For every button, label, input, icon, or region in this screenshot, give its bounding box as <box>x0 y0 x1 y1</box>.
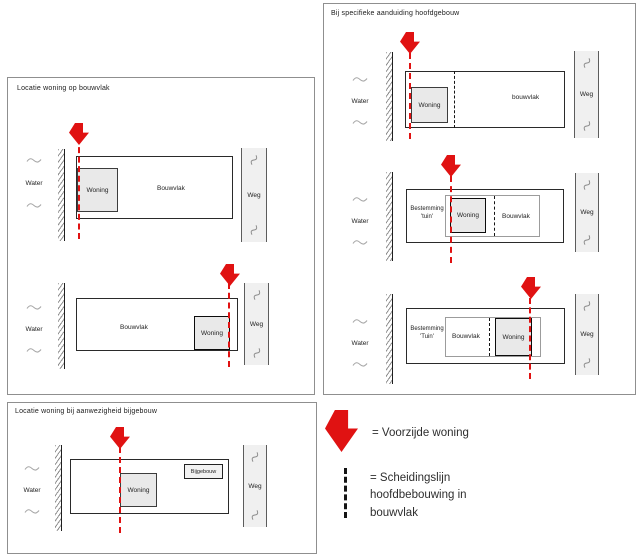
woning-label: Woning <box>503 334 525 341</box>
wave-icon <box>26 347 42 354</box>
front-arrow-icon <box>400 32 420 54</box>
weg-strip: Weg <box>241 148 267 242</box>
road-mark-icon <box>581 233 593 246</box>
red-dashed-line <box>529 298 531 379</box>
road-mark-icon <box>581 178 593 191</box>
weg-strip: Weg <box>575 173 599 252</box>
road-mark-icon <box>248 223 260 236</box>
water-zone: Water <box>341 196 379 246</box>
road-mark-icon <box>251 288 263 301</box>
front-arrow-icon <box>441 155 461 177</box>
road-mark-icon <box>581 119 593 132</box>
road-mark-icon <box>581 56 593 69</box>
wave-icon <box>352 196 368 203</box>
weg-strip: Weg <box>243 445 267 527</box>
red-dashed-line <box>409 53 411 139</box>
road-mark-icon <box>581 299 593 312</box>
water-zone: Water <box>14 465 50 515</box>
front-arrow-icon <box>110 427 130 449</box>
weg-strip: Weg <box>575 294 599 375</box>
legend-separator-label: = Scheidingslijn hoofdbebouwing in bouwv… <box>370 470 482 522</box>
shore-hatch-line <box>55 445 62 531</box>
panel-specifieke-aanduiding-hoofdgebouw: Bij specifieke aanduiding hoofdgebouw Wa… <box>323 3 636 395</box>
water-zone: Water <box>16 157 52 209</box>
red-dashed-line <box>228 283 230 367</box>
bouwvlak-label: Bouwvlak <box>502 213 530 220</box>
wave-icon <box>26 304 42 311</box>
bijgebouw-label: Bijgebouw <box>191 469 216 475</box>
woning-box: Woning <box>450 198 486 233</box>
water-label: Water <box>351 98 368 105</box>
wave-icon <box>26 157 42 164</box>
woning-box: Woning <box>411 87 448 123</box>
bestemming-tuin-label: Bestemming 'Tuin' <box>407 325 447 341</box>
water-label: Water <box>351 218 368 225</box>
water-zone: Water <box>16 304 52 354</box>
panel-locatie-woning-bij-bijgebouw: Locatie woning bij aanwezigheid bijgebou… <box>7 402 317 554</box>
weg-label: Weg <box>247 192 260 199</box>
weg-label: Weg <box>250 321 263 328</box>
wave-icon <box>352 239 368 246</box>
water-label: Water <box>25 180 42 187</box>
water-zone: Water <box>341 76 379 126</box>
water-label: Water <box>23 487 40 494</box>
bouwvlak-label: bouwvlak <box>512 94 539 101</box>
shore-hatch-line <box>58 149 65 241</box>
separation-dashed-line <box>494 196 495 236</box>
road-mark-icon <box>249 508 261 521</box>
wave-icon <box>352 361 368 368</box>
bijgebouw-box: Bijgebouw <box>184 464 223 479</box>
weg-label: Weg <box>248 483 261 490</box>
separation-dashed-line <box>454 71 455 128</box>
woning-label: Woning <box>419 102 441 109</box>
shore-hatch-line <box>386 52 393 141</box>
road-mark-icon <box>248 153 260 166</box>
bouwvlak-label: Bouwvlak <box>157 185 185 192</box>
panel-locatie-woning-op-bouwvlak: Locatie woning op bouwvlak Water Bouwvla… <box>7 77 315 395</box>
wave-icon <box>24 508 40 515</box>
bestemming-tuin-label: Bestemming 'tuin' <box>407 205 447 221</box>
wave-icon <box>352 76 368 83</box>
water-label: Water <box>25 326 42 333</box>
bouwvlak-label: Bouwvlak <box>452 333 480 340</box>
road-mark-icon <box>251 346 263 359</box>
wave-icon <box>26 202 42 209</box>
road-mark-icon <box>581 356 593 369</box>
shore-hatch-line <box>386 172 393 261</box>
shore-hatch-line <box>58 283 65 369</box>
woning-label: Woning <box>201 330 223 337</box>
wave-icon <box>352 119 368 126</box>
road-mark-icon <box>249 450 261 463</box>
weg-strip: Weg <box>244 283 269 365</box>
bouwvlak-label: Bouwvlak <box>120 324 148 331</box>
separation-dashed-line <box>489 318 490 356</box>
panel-title: Locatie woning op bouwvlak <box>17 85 110 92</box>
legend-separation-line-icon <box>344 468 347 518</box>
woning-box: Woning <box>120 473 157 507</box>
front-arrow-icon <box>521 277 541 299</box>
weg-label: Weg <box>580 331 593 338</box>
red-dashed-line <box>119 447 121 533</box>
panel-title: Locatie woning bij aanwezigheid bijgebou… <box>15 408 157 415</box>
weg-strip: Weg <box>574 51 599 138</box>
weg-label: Weg <box>580 91 593 98</box>
water-label: Water <box>351 340 368 347</box>
wave-icon <box>24 465 40 472</box>
red-dashed-line <box>450 176 452 263</box>
shore-hatch-line <box>386 294 393 384</box>
woning-box: Woning <box>495 318 532 356</box>
legend-arrow-label: = Voorzijde woning <box>372 427 469 439</box>
woning-box: Woning <box>77 168 118 212</box>
water-zone: Water <box>341 318 379 368</box>
woning-box: Woning <box>194 316 230 350</box>
woning-label: Woning <box>457 212 479 219</box>
weg-label: Weg <box>580 209 593 216</box>
wave-icon <box>352 318 368 325</box>
woning-label: Woning <box>87 187 109 194</box>
panel-title: Bij specifieke aanduiding hoofdgebouw <box>331 10 459 17</box>
front-arrow-icon <box>69 123 89 145</box>
front-arrow-icon <box>220 264 240 286</box>
legend-front-arrow-icon <box>325 410 358 452</box>
woning-label: Woning <box>128 487 150 494</box>
